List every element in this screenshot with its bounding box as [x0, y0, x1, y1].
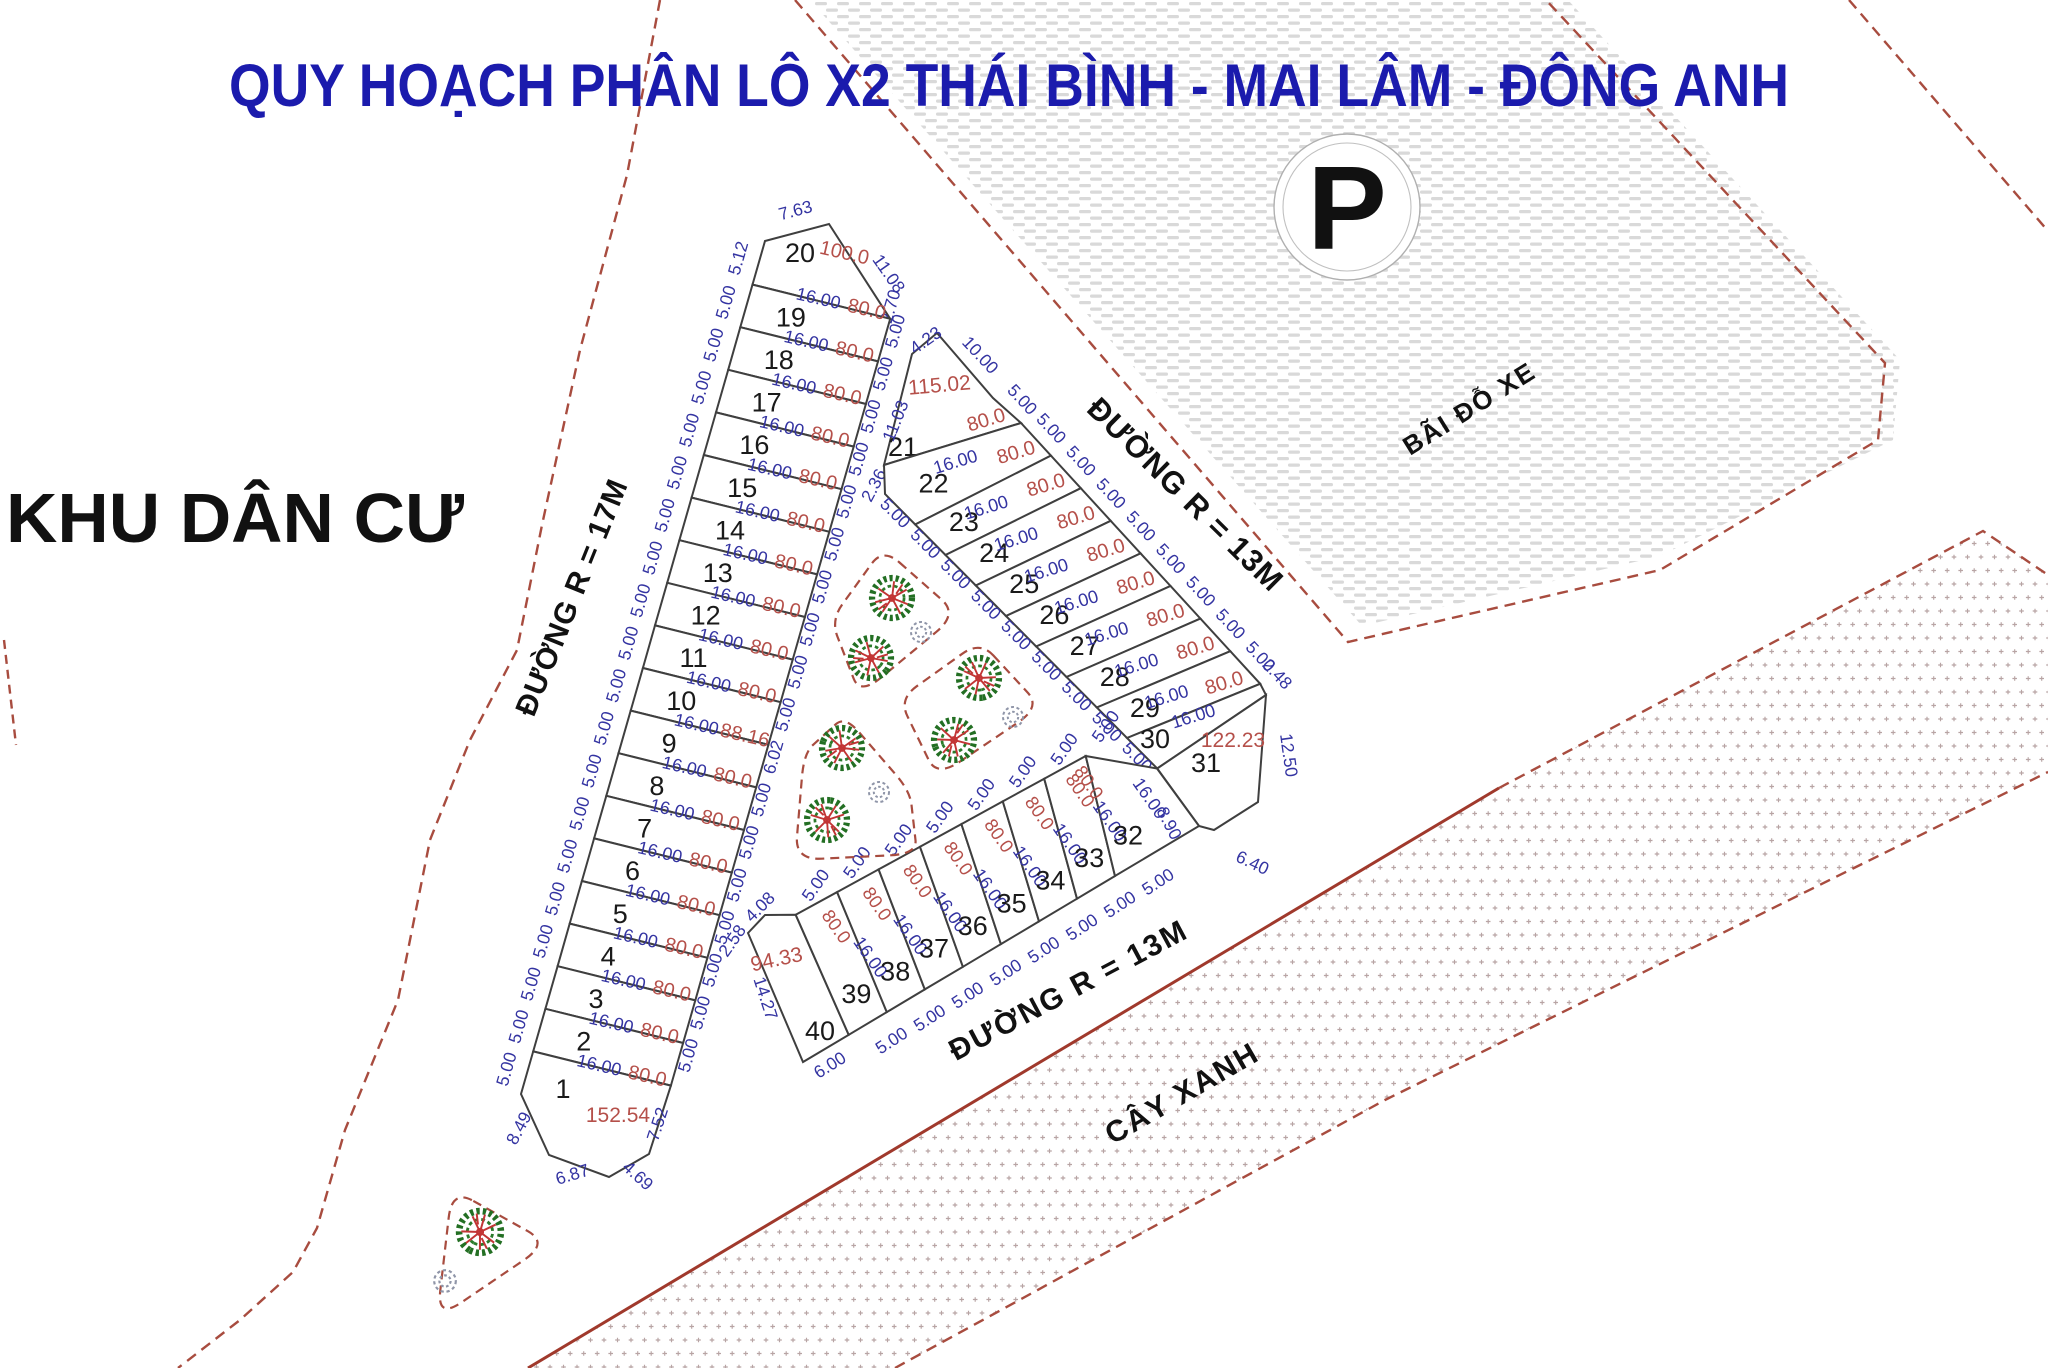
- svg-text:37: 37: [919, 934, 949, 964]
- svg-text:38: 38: [880, 956, 910, 986]
- svg-text:P: P: [1307, 142, 1386, 275]
- svg-text:36: 36: [958, 911, 988, 941]
- svg-text:QUY HOẠCH PHÂN LÔ X2 THÁI BÌNH: QUY HOẠCH PHÂN LÔ X2 THÁI BÌNH - MAI LÂM…: [229, 52, 1789, 119]
- svg-text:39: 39: [841, 979, 871, 1009]
- svg-text:32: 32: [1113, 820, 1143, 850]
- svg-text:34: 34: [1035, 866, 1065, 896]
- svg-text:31: 31: [1191, 748, 1221, 778]
- svg-text:35: 35: [997, 888, 1027, 918]
- svg-text:1: 1: [555, 1074, 570, 1104]
- svg-text:33: 33: [1074, 843, 1104, 873]
- svg-text:20: 20: [785, 238, 815, 268]
- svg-text:KHU DÂN CƯ: KHU DÂN CƯ: [6, 478, 465, 557]
- svg-text:152.54: 152.54: [586, 1104, 651, 1127]
- svg-text:40: 40: [805, 1016, 835, 1046]
- svg-text:122.23: 122.23: [1201, 729, 1265, 752]
